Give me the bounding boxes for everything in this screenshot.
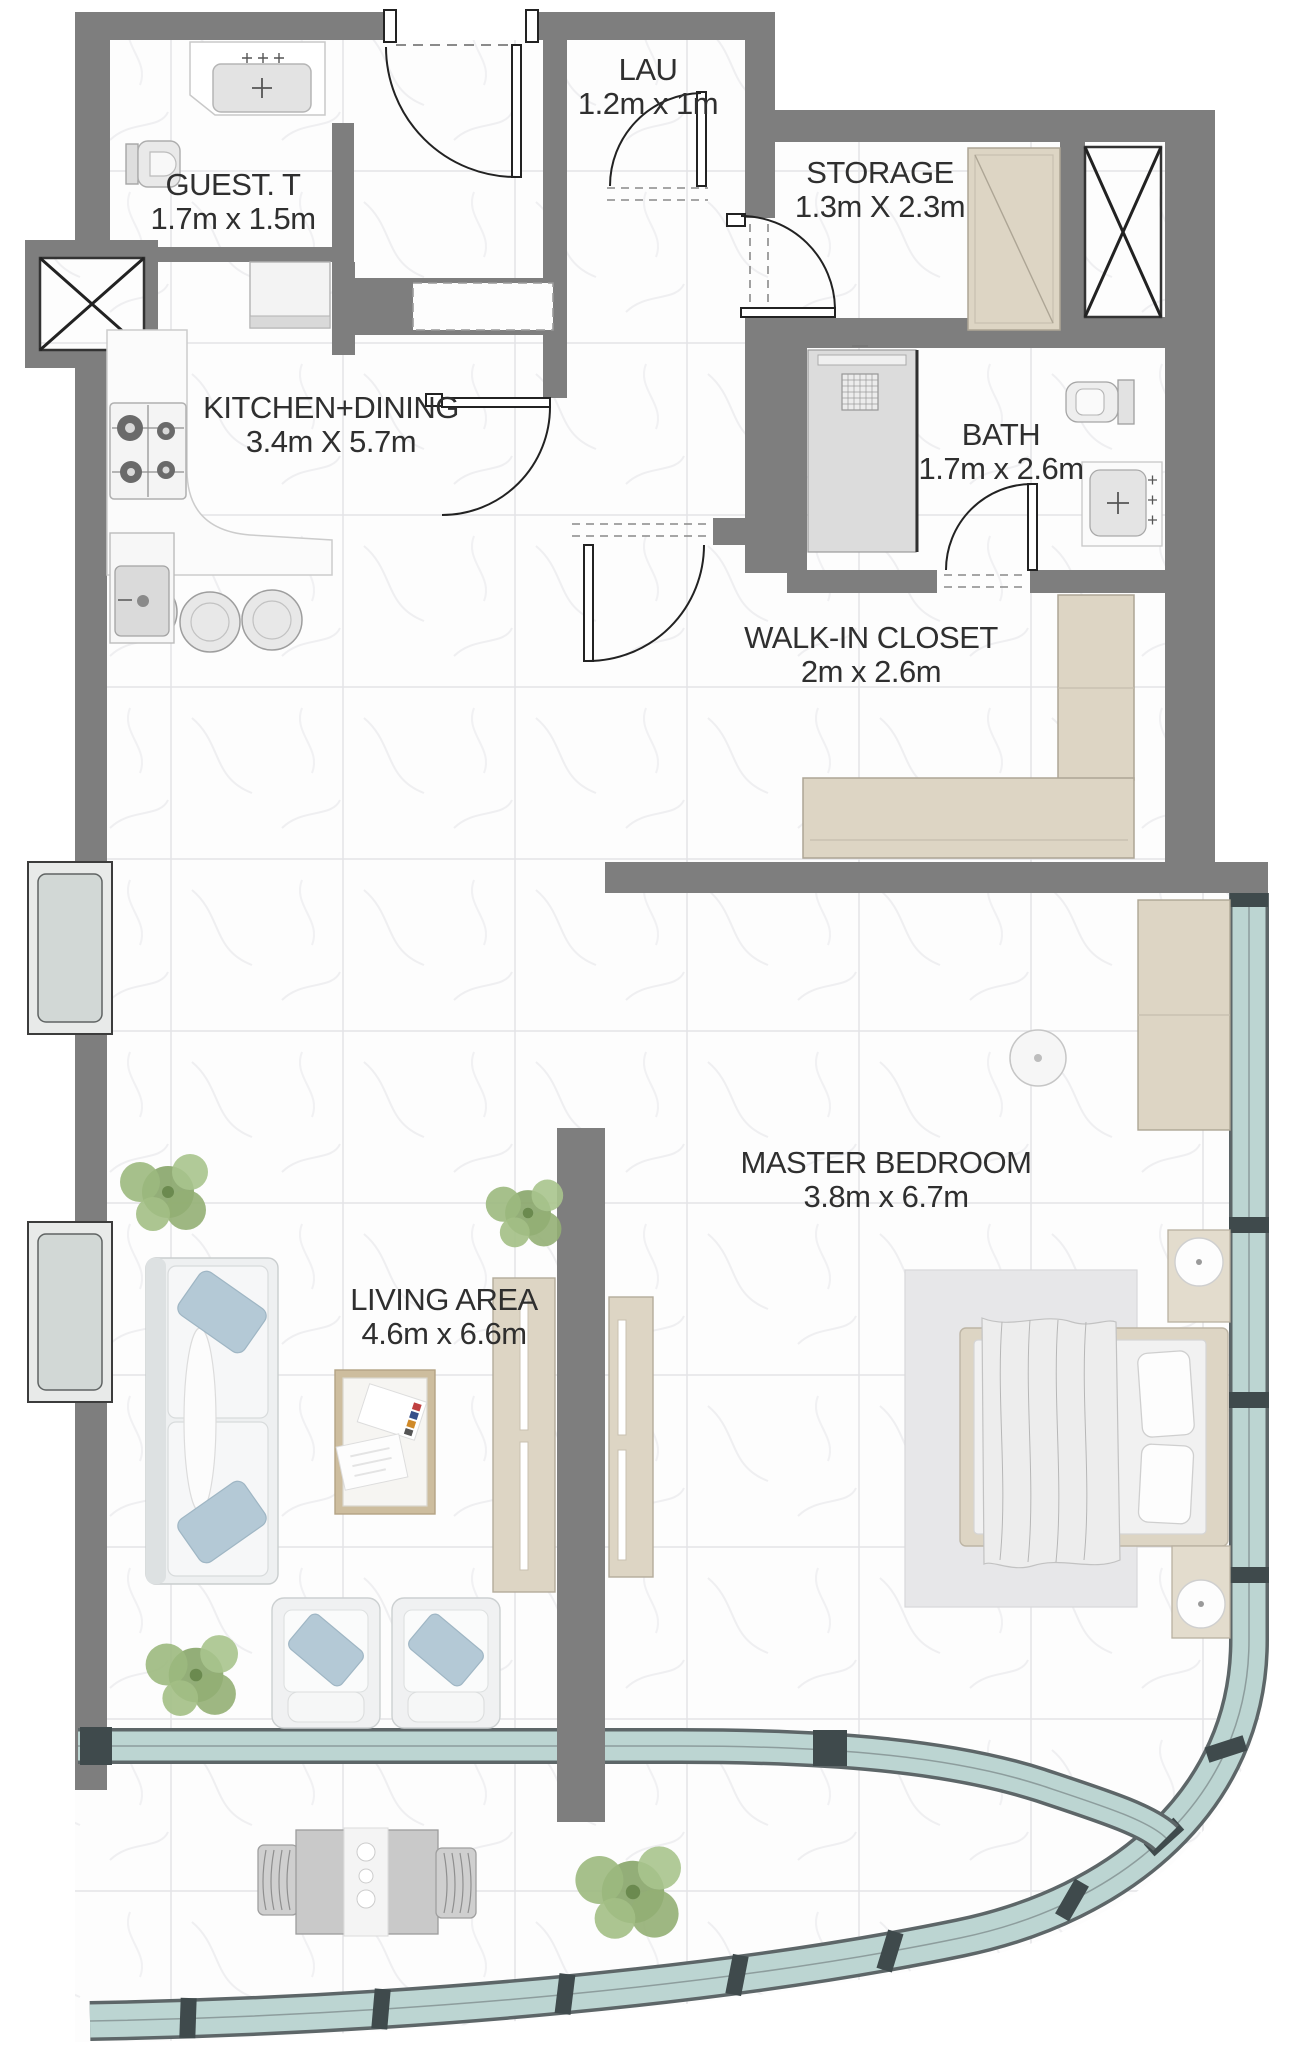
room-dims: 3.4m X 5.7m [203, 425, 459, 459]
coffee-table [335, 1370, 435, 1514]
sink-icon [190, 42, 325, 115]
room-label-storage: STORAGE 1.3m X 2.3m [795, 156, 965, 224]
window-box [28, 862, 112, 1034]
room-dims: 1.2m x 1m [578, 87, 718, 121]
kitchen-sink-icon [110, 533, 174, 643]
wall [745, 110, 1215, 142]
sofa [146, 1258, 278, 1584]
room-label-kitchen-dining: KITCHEN+DINING 3.4m X 5.7m [203, 391, 459, 459]
armchair [392, 1598, 500, 1728]
nightstand [1168, 1230, 1230, 1322]
blanket [982, 1318, 1120, 1568]
fridge-icon [250, 262, 330, 328]
storage-closet [968, 148, 1060, 330]
armchair [272, 1598, 380, 1728]
chair-icon [436, 1848, 476, 1918]
window-box [28, 1222, 112, 1402]
pillow [1138, 1444, 1194, 1525]
wall [332, 123, 354, 247]
wall [543, 12, 567, 230]
room-name: BATH [918, 418, 1083, 452]
room-dims: 4.6m x 6.6m [350, 1317, 537, 1351]
wall [75, 12, 390, 40]
wall [787, 570, 937, 593]
sideboard [609, 1297, 653, 1577]
wall [75, 368, 107, 1790]
wall [75, 12, 110, 258]
room-dims: 3.8m x 6.7m [741, 1180, 1032, 1214]
wall [605, 862, 1268, 893]
floor-plan: GUEST. T 1.7m x 1.5m LAU 1.2m x 1m STORA… [0, 0, 1290, 2064]
floor-plan-drawing [0, 0, 1290, 2064]
pillow [1137, 1350, 1195, 1437]
room-label-living-area: LIVING AREA 4.6m x 6.6m [350, 1283, 537, 1351]
wall [1030, 570, 1165, 593]
room-name: MASTER BEDROOM [741, 1146, 1032, 1180]
bed [960, 1318, 1228, 1568]
room-dims: 1.7m x 2.6m [918, 452, 1083, 486]
wall [332, 262, 355, 355]
room-name: STORAGE [795, 156, 965, 190]
wall [1060, 142, 1085, 317]
room-label-master-bedroom: MASTER BEDROOM 3.8m x 6.7m [741, 1146, 1032, 1214]
room-name: LIVING AREA [350, 1283, 537, 1317]
wall-fin [557, 1128, 605, 1822]
room-label-laundry: LAU 1.2m x 1m [578, 53, 718, 121]
shower-icon [808, 346, 916, 552]
room-label-bath: BATH 1.7m x 2.6m [918, 418, 1083, 486]
nightstand [1172, 1546, 1230, 1638]
ceiling-bulkhead-dashed [413, 283, 553, 330]
room-dims: 1.3m X 2.3m [795, 190, 965, 224]
room-name: GUEST. T [150, 168, 315, 202]
shaft-x-icon [1085, 147, 1161, 317]
room-name: KITCHEN+DINING [203, 391, 459, 425]
vanity-sink-icon [1082, 462, 1162, 546]
chair-icon [258, 1845, 298, 1915]
room-label-guest-toilet: GUEST. T 1.7m x 1.5m [150, 168, 315, 236]
room-name: LAU [578, 53, 718, 87]
wall [713, 518, 807, 545]
room-name: WALK-IN CLOSET [744, 621, 998, 655]
room-dims: 1.7m x 1.5m [150, 202, 315, 236]
wall [1165, 110, 1215, 893]
stove-icon [110, 403, 186, 499]
dining-table [296, 1828, 438, 1936]
room-dims: 2m x 2.6m [744, 655, 998, 689]
room-label-walk-in-closet: WALK-IN CLOSET 2m x 2.6m [744, 621, 998, 689]
